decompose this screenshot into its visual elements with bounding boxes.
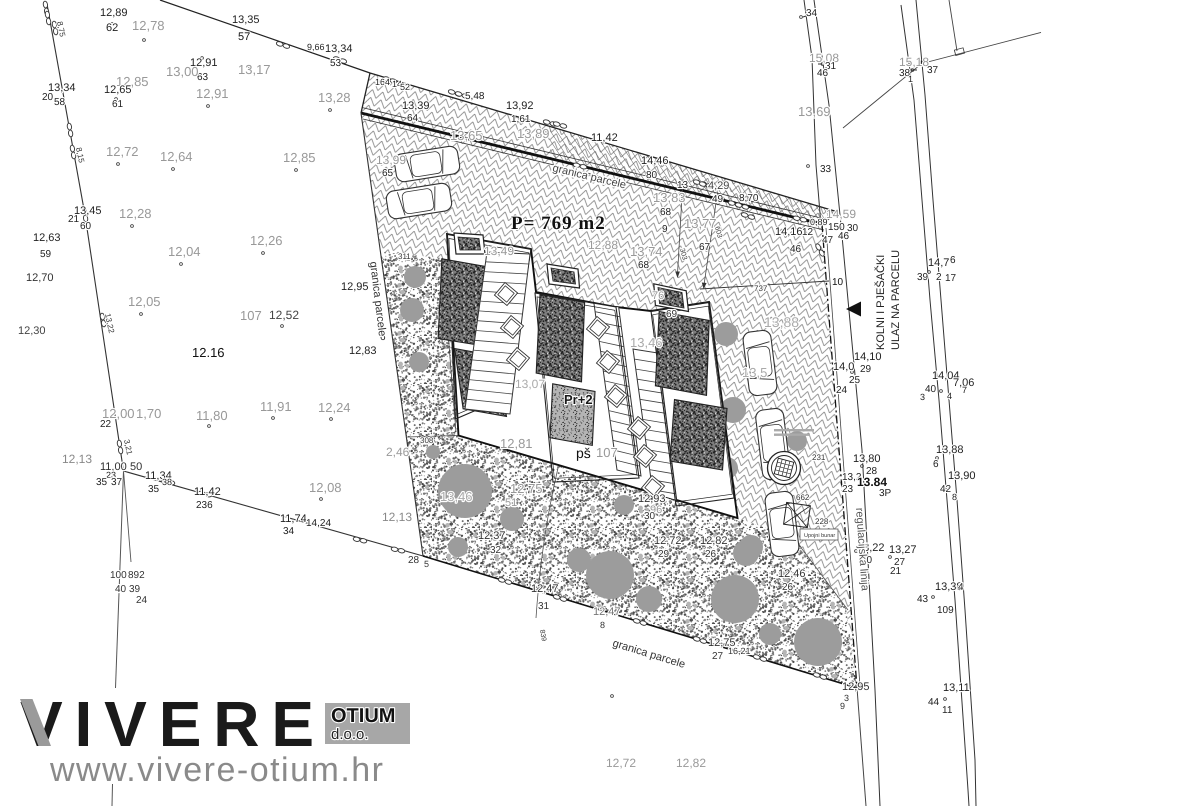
svg-text:33: 33 <box>820 164 832 175</box>
svg-text:Pr+2: Pr+2 <box>564 392 593 407</box>
svg-text:26: 26 <box>705 549 717 560</box>
svg-text:46: 46 <box>838 231 850 242</box>
svg-text:5: 5 <box>424 559 429 569</box>
svg-text:31: 31 <box>538 601 550 612</box>
svg-text:13,92: 13,92 <box>506 100 534 112</box>
svg-text:40: 40 <box>925 384 937 395</box>
svg-text:11,42: 11,42 <box>591 132 618 144</box>
svg-text:12,46: 12,46 <box>778 568 806 580</box>
svg-text:16: 16 <box>375 77 385 87</box>
svg-text:892: 892 <box>128 570 145 581</box>
svg-text:12,47: 12,47 <box>593 606 621 618</box>
svg-text:12,95: 12,95 <box>341 281 369 293</box>
svg-text:12,24: 12,24 <box>318 400 351 415</box>
svg-text:13,00: 13,00 <box>166 64 199 79</box>
svg-text:12,78: 12,78 <box>132 18 165 33</box>
svg-text:12,04: 12,04 <box>168 244 201 259</box>
svg-text:34: 34 <box>806 8 818 19</box>
svg-text:61: 61 <box>112 99 124 110</box>
svg-text:311: 311 <box>398 252 411 261</box>
svg-text:12,70: 12,70 <box>26 272 54 284</box>
svg-text:3: 3 <box>920 392 925 402</box>
svg-text:28: 28 <box>408 555 420 566</box>
svg-text:62: 62 <box>106 22 118 34</box>
svg-text:12,13: 12,13 <box>382 510 412 524</box>
svg-text:13,77: 13,77 <box>684 216 717 231</box>
svg-text:13,90: 13,90 <box>948 470 976 482</box>
svg-text:13,49: 13,49 <box>484 244 514 258</box>
svg-text:14,46: 14,46 <box>641 155 669 167</box>
svg-text:12,81: 12,81 <box>500 436 533 451</box>
svg-text:69: 69 <box>666 309 678 320</box>
svg-text:308: 308 <box>420 436 434 445</box>
svg-text:13,34: 13,34 <box>325 43 353 55</box>
svg-text:68: 68 <box>660 207 672 218</box>
svg-text:12,95: 12,95 <box>842 681 870 693</box>
svg-text:109: 109 <box>937 605 954 616</box>
svg-text:39: 39 <box>129 584 141 595</box>
svg-text:37: 37 <box>927 65 939 76</box>
svg-text:107: 107 <box>596 445 618 460</box>
svg-text:35: 35 <box>96 477 108 488</box>
svg-text:59: 59 <box>40 249 52 260</box>
svg-text:1,70: 1,70 <box>136 406 161 421</box>
svg-text:13,88: 13,88 <box>764 314 799 330</box>
svg-text:14,0: 14,0 <box>833 361 854 373</box>
svg-text:12: 12 <box>802 227 814 238</box>
svg-text:67: 67 <box>699 242 711 253</box>
svg-text:13,69: 13,69 <box>798 104 831 119</box>
svg-text:231: 231 <box>812 453 826 462</box>
svg-text:14,59: 14,59 <box>826 207 856 221</box>
svg-text:12,52: 12,52 <box>269 308 299 322</box>
svg-text:13,39: 13,39 <box>402 100 430 112</box>
svg-text:12,37: 12,37 <box>478 530 506 542</box>
svg-text:13,99: 13,99 <box>376 153 406 167</box>
svg-text:53: 53 <box>330 58 342 69</box>
svg-text:12,88: 12,88 <box>588 238 618 252</box>
svg-text:10: 10 <box>832 277 844 288</box>
svg-text:60: 60 <box>80 221 92 232</box>
svg-text:12,82: 12,82 <box>676 756 706 770</box>
svg-text:13,07: 13,07 <box>515 377 545 391</box>
svg-text:107: 107 <box>240 308 262 323</box>
svg-text:37: 37 <box>111 477 123 488</box>
svg-text:46: 46 <box>790 244 802 255</box>
svg-text:6: 6 <box>933 459 939 470</box>
svg-text:12,47: 12,47 <box>531 583 559 595</box>
svg-text:11,42: 11,42 <box>194 486 221 498</box>
svg-text:39: 39 <box>917 272 929 283</box>
svg-text:7: 7 <box>962 385 967 395</box>
svg-text:14,10: 14,10 <box>854 351 882 363</box>
svg-text:12,82: 12,82 <box>700 535 728 547</box>
svg-text:15,18: 15,18 <box>899 55 929 69</box>
svg-text:57: 57 <box>238 31 250 43</box>
svg-text:12,91: 12,91 <box>196 86 229 101</box>
svg-text:25: 25 <box>849 375 861 386</box>
svg-text:32: 32 <box>490 545 502 556</box>
svg-text:64: 64 <box>407 113 419 124</box>
svg-text:12,72: 12,72 <box>606 756 636 770</box>
svg-text:12.16: 12.16 <box>192 345 225 360</box>
svg-text:20: 20 <box>42 92 54 103</box>
svg-text:43: 43 <box>917 594 929 605</box>
svg-text:4,29: 4,29 <box>708 180 729 192</box>
svg-text:34: 34 <box>283 526 295 537</box>
svg-text:21: 21 <box>68 214 80 225</box>
svg-text:13,46: 13,46 <box>440 489 473 504</box>
svg-text:12,83: 12,83 <box>349 345 377 357</box>
svg-text:29: 29 <box>658 549 670 560</box>
svg-text:12,85: 12,85 <box>283 150 316 165</box>
svg-text:46: 46 <box>817 68 829 79</box>
svg-text:11,91: 11,91 <box>260 399 292 414</box>
svg-text:8,70: 8,70 <box>739 193 759 204</box>
svg-text:13,5: 13,5 <box>742 365 767 380</box>
svg-text:12,26: 12,26 <box>250 233 283 248</box>
svg-text:13,83: 13,83 <box>653 190 686 205</box>
svg-text:4: 4 <box>385 77 390 87</box>
svg-text:13,35: 13,35 <box>232 14 260 26</box>
svg-text:13,74: 13,74 <box>630 244 663 259</box>
svg-text:27: 27 <box>712 651 724 662</box>
svg-text:13.84: 13.84 <box>857 475 887 489</box>
svg-text:58: 58 <box>54 97 66 108</box>
svg-text:30: 30 <box>644 511 656 522</box>
svg-text:6: 6 <box>950 255 956 266</box>
svg-text:8: 8 <box>952 492 957 502</box>
svg-text:42: 42 <box>940 484 952 495</box>
svg-text:65: 65 <box>382 168 394 179</box>
svg-text:12,64: 12,64 <box>160 149 193 164</box>
svg-text:44: 44 <box>928 697 940 708</box>
svg-text:14,7: 14,7 <box>928 257 949 269</box>
svg-text:pš: pš <box>576 445 591 461</box>
svg-text:1: 1 <box>908 74 913 84</box>
svg-text:16,21: 16,21 <box>728 646 751 656</box>
svg-text:17: 17 <box>945 273 957 284</box>
svg-text:12,89: 12,89 <box>100 7 128 19</box>
svg-text:662: 662 <box>796 493 810 502</box>
svg-text:236: 236 <box>196 500 213 511</box>
svg-text:9: 9 <box>662 224 668 235</box>
svg-text:35: 35 <box>148 484 160 495</box>
svg-text:68: 68 <box>638 260 650 271</box>
svg-text:26: 26 <box>782 582 794 593</box>
svg-text:13,88: 13,88 <box>936 444 964 456</box>
svg-text:9: 9 <box>840 701 845 711</box>
svg-text:1,61: 1,61 <box>511 114 531 125</box>
svg-text:11,80: 11,80 <box>196 408 228 423</box>
svg-text:13,65: 13,65 <box>450 128 483 143</box>
svg-text:11,74: 11,74 <box>280 513 307 525</box>
svg-text:12,30: 12,30 <box>18 325 46 337</box>
svg-text:47: 47 <box>822 235 834 246</box>
svg-text:14,24: 14,24 <box>306 518 331 529</box>
svg-text:228: 228 <box>815 517 829 526</box>
svg-text:12,05: 12,05 <box>128 294 161 309</box>
svg-text:4: 4 <box>947 391 952 401</box>
svg-text:24: 24 <box>836 385 848 396</box>
svg-text:13,89: 13,89 <box>517 126 550 141</box>
svg-text:12,13: 12,13 <box>62 452 92 466</box>
svg-text:13,46: 13,46 <box>630 335 663 350</box>
svg-text:63: 63 <box>197 72 209 83</box>
svg-text:8: 8 <box>600 620 605 630</box>
svg-text:2,46: 2,46 <box>386 445 410 459</box>
svg-text:100: 100 <box>110 570 127 581</box>
svg-text:12,08: 12,08 <box>309 480 342 495</box>
svg-text:51: 51 <box>505 497 517 509</box>
svg-text:21: 21 <box>890 566 902 577</box>
svg-text:50: 50 <box>130 461 142 473</box>
svg-text:3P: 3P <box>879 488 892 499</box>
svg-text:80: 80 <box>646 170 658 181</box>
svg-text:d.o.o.: d.o.o. <box>331 726 369 743</box>
svg-text:0,89: 0,89 <box>810 217 828 227</box>
svg-text:KOLNI I PJEŠAČKI: KOLNI I PJEŠAČKI <box>874 255 887 350</box>
svg-text:40: 40 <box>115 584 127 595</box>
svg-text:29: 29 <box>860 364 872 375</box>
svg-text:49: 49 <box>712 194 724 205</box>
svg-text:38: 38 <box>162 477 172 487</box>
svg-text:12,65: 12,65 <box>104 84 132 96</box>
svg-text:13,17: 13,17 <box>238 62 271 77</box>
svg-text:P= 769 m2: P= 769 m2 <box>511 213 606 234</box>
svg-text:OTIUM: OTIUM <box>331 705 395 727</box>
svg-text:5,48: 5,48 <box>465 91 485 102</box>
svg-text:13,28: 13,28 <box>318 90 351 105</box>
svg-text:13,11: 13,11 <box>943 682 970 694</box>
svg-text:9,66: 9,66 <box>307 42 325 52</box>
svg-text:2: 2 <box>936 272 942 283</box>
svg-text:12,75: 12,75 <box>510 481 543 496</box>
svg-text:12,72: 12,72 <box>106 144 139 159</box>
svg-text:737: 737 <box>754 284 768 293</box>
svg-text:24: 24 <box>136 595 148 606</box>
svg-text:12,63: 12,63 <box>33 232 61 244</box>
svg-text:52: 52 <box>400 82 410 92</box>
svg-text:12,72: 12,72 <box>654 535 682 547</box>
svg-text:13,27: 13,27 <box>889 544 917 556</box>
svg-text:ULAZ NA PARCELU: ULAZ NA PARCELU <box>890 250 902 350</box>
svg-text:4: 4 <box>958 582 964 593</box>
svg-text:22: 22 <box>100 419 112 430</box>
svg-text:Upojni bunar: Upojni bunar <box>804 533 835 539</box>
svg-text:12,28: 12,28 <box>119 206 152 221</box>
svg-text:www.vivere-otium.hr: www.vivere-otium.hr <box>49 751 383 789</box>
svg-text:23: 23 <box>842 484 854 495</box>
svg-text:13,80: 13,80 <box>853 453 881 465</box>
svg-text:14,16: 14,16 <box>775 226 803 238</box>
svg-text:76: 76 <box>652 290 664 302</box>
svg-text:11: 11 <box>942 705 953 716</box>
